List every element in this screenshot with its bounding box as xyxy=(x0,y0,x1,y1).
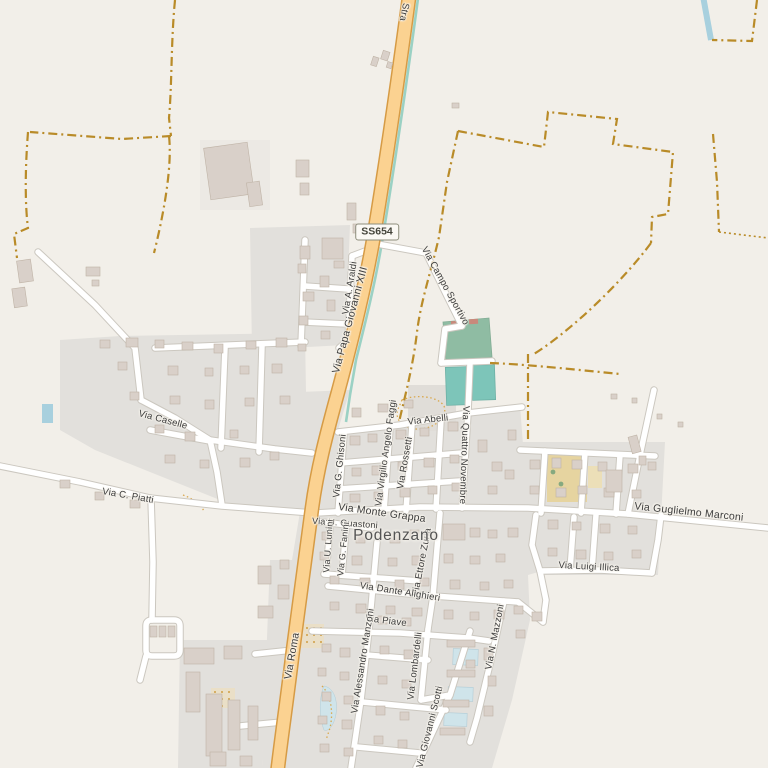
road-ref-shield: SS654 xyxy=(355,224,399,241)
pitch xyxy=(471,365,495,401)
map-viewport[interactable]: Stra Via A. Araldi Via Papa Giovanni XII… xyxy=(0,0,768,768)
map-canvas xyxy=(0,0,768,768)
